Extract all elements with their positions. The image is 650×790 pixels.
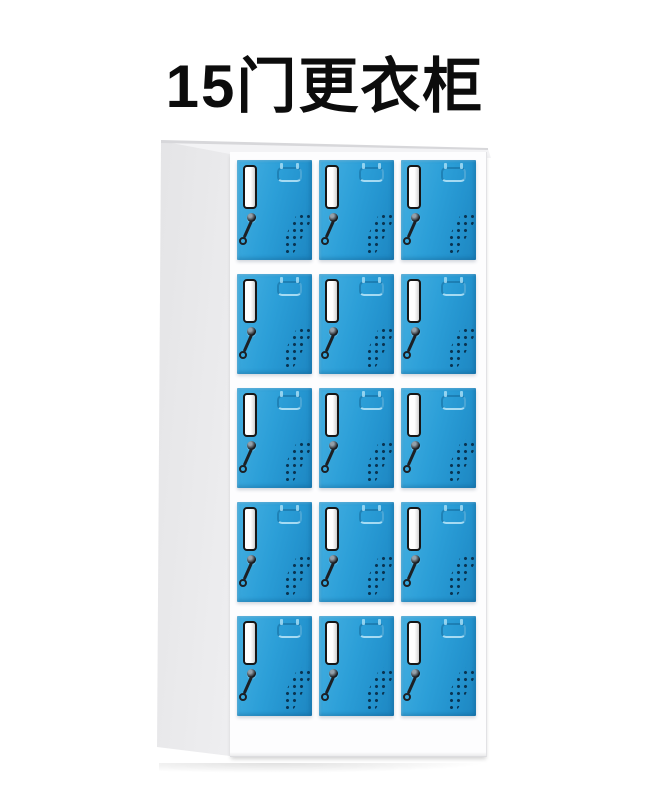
recessed-handle <box>441 395 466 410</box>
recessed-handle <box>277 509 302 524</box>
recessed-handle <box>441 281 466 296</box>
page: { "title": { "text": "15门更衣柜" }, "cabine… <box>0 0 650 790</box>
card-label-slot <box>407 621 421 665</box>
locker-door <box>319 274 394 374</box>
locker-door <box>319 160 394 260</box>
locker-door <box>237 160 312 260</box>
recessed-handle <box>277 395 302 410</box>
key-ring <box>239 465 247 473</box>
hanging-key <box>243 220 253 238</box>
key-ring <box>321 579 329 587</box>
key-ring <box>321 351 329 359</box>
key-ring <box>321 693 329 701</box>
recessed-handle <box>359 395 384 410</box>
locker-cabinet <box>155 136 495 768</box>
hanging-key <box>407 562 417 580</box>
card-label-slot <box>407 507 421 551</box>
card-label-slot <box>325 279 339 323</box>
hanging-key <box>325 676 335 694</box>
hanging-key <box>325 334 335 352</box>
locker-door <box>401 160 476 260</box>
hanging-key <box>407 334 417 352</box>
key-ring <box>403 693 411 701</box>
hanging-key <box>325 220 335 238</box>
locker-door <box>237 388 312 488</box>
card-label-slot <box>243 621 257 665</box>
recessed-handle <box>441 167 466 182</box>
key-ring <box>239 351 247 359</box>
recessed-handle <box>277 281 302 296</box>
hanging-key <box>325 562 335 580</box>
vent-holes <box>283 325 310 367</box>
locker-door <box>319 388 394 488</box>
vent-holes <box>283 667 310 709</box>
key-ring <box>239 693 247 701</box>
card-label-slot <box>407 393 421 437</box>
vent-holes <box>365 439 392 481</box>
card-label-slot <box>243 393 257 437</box>
vent-holes <box>365 553 392 595</box>
hanging-key <box>325 448 335 466</box>
recessed-handle <box>441 509 466 524</box>
vent-holes <box>447 667 474 709</box>
recessed-handle <box>441 623 466 638</box>
locker-door <box>401 502 476 602</box>
vent-holes <box>447 325 474 367</box>
locker-door <box>237 274 312 374</box>
vent-holes <box>447 553 474 595</box>
card-label-slot <box>325 393 339 437</box>
vent-holes <box>283 553 310 595</box>
card-label-slot <box>407 279 421 323</box>
recessed-handle <box>359 167 384 182</box>
vent-holes <box>283 439 310 481</box>
recessed-handle <box>277 167 302 182</box>
hanging-key <box>243 448 253 466</box>
vent-holes <box>365 211 392 253</box>
key-ring <box>239 579 247 587</box>
vent-holes <box>447 211 474 253</box>
door-grid <box>230 152 486 756</box>
locker-door <box>401 388 476 488</box>
hanging-key <box>407 676 417 694</box>
locker-door <box>237 502 312 602</box>
card-label-slot <box>325 621 339 665</box>
vent-holes <box>283 211 310 253</box>
card-label-slot <box>325 507 339 551</box>
recessed-handle <box>359 623 384 638</box>
locker-door <box>319 502 394 602</box>
vent-holes <box>365 667 392 709</box>
key-ring <box>403 579 411 587</box>
recessed-handle <box>359 281 384 296</box>
cabinet-front-face <box>230 152 487 757</box>
locker-door <box>401 616 476 716</box>
key-ring <box>239 237 247 245</box>
key-ring <box>403 237 411 245</box>
locker-door <box>237 616 312 716</box>
card-label-slot <box>325 165 339 209</box>
recessed-handle <box>277 623 302 638</box>
hanging-key <box>243 562 253 580</box>
hanging-key <box>243 676 253 694</box>
card-label-slot <box>243 165 257 209</box>
hanging-key <box>407 448 417 466</box>
key-ring <box>321 465 329 473</box>
product-title: 15门更衣柜 <box>0 38 650 125</box>
card-label-slot <box>407 165 421 209</box>
card-label-slot <box>243 279 257 323</box>
key-ring <box>321 237 329 245</box>
key-ring <box>403 351 411 359</box>
locker-door <box>319 616 394 716</box>
locker-door <box>401 274 476 374</box>
recessed-handle <box>359 509 384 524</box>
vent-holes <box>447 439 474 481</box>
cabinet-ground-shadow <box>159 763 487 773</box>
card-label-slot <box>243 507 257 551</box>
vent-holes <box>365 325 392 367</box>
key-ring <box>403 465 411 473</box>
hanging-key <box>243 334 253 352</box>
hanging-key <box>407 220 417 238</box>
